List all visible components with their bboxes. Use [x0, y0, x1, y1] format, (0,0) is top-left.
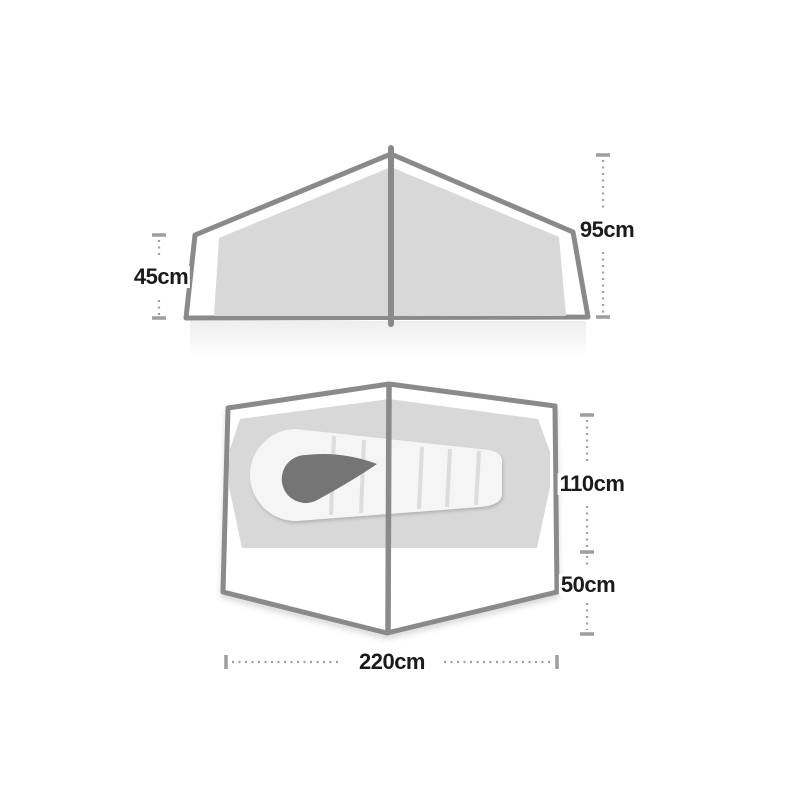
- diagram-drawing: [0, 0, 800, 800]
- floor-center-seam: [388, 386, 389, 631]
- tent-floor-plan: [223, 384, 594, 669]
- tent-side-view: [152, 148, 610, 357]
- peak-height-label: 95cm: [578, 219, 636, 241]
- dimension-line-110cm-50cm: [580, 415, 594, 634]
- side-wall-height-label: 45cm: [132, 266, 190, 288]
- total-width-label: 220cm: [357, 651, 427, 673]
- ground-shadow: [190, 321, 586, 357]
- inner-depth-label: 110cm: [558, 473, 627, 495]
- tent-dimensions-diagram: 45cm 95cm 110cm 50cm 220cm: [0, 0, 800, 800]
- porch-depth-label: 50cm: [559, 574, 617, 596]
